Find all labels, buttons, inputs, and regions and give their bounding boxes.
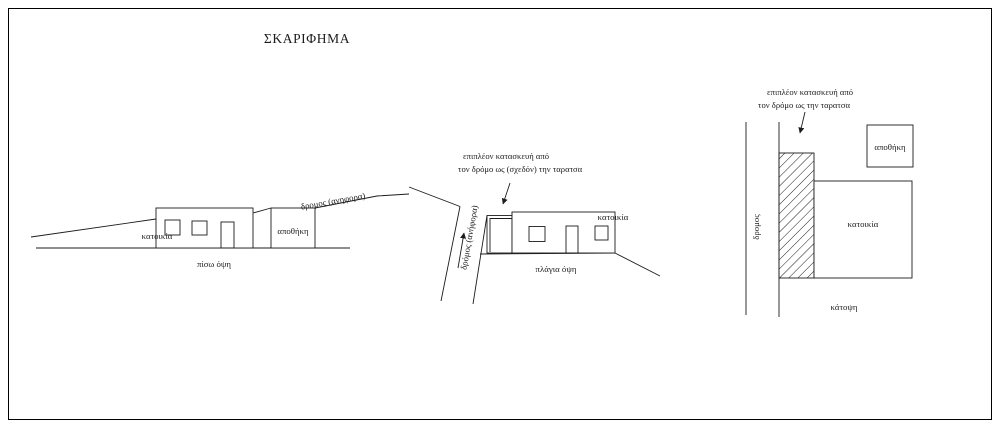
rear-house-outline [156, 208, 253, 248]
plan-road-label: δρομος [751, 214, 761, 240]
side-annotation-line1: επιπλέον κατασκευή από [463, 151, 549, 161]
plan-annotation-line2: τον δρόμο ως την ταρατσα [758, 100, 850, 110]
side-annotation-line2: τον δρόμο ως (σχεδόν) την ταρατσα [458, 164, 583, 174]
side-road-label: δρόμος (ανήφορα) [458, 204, 479, 270]
side-annotation-arrow [503, 183, 510, 204]
side-terrain-slope-line [615, 253, 660, 276]
rear-house-label: κατοικία [142, 231, 173, 241]
side-road-left-line [441, 207, 460, 302]
side-road-bend-line [409, 187, 460, 207]
rear-view-caption: πίσω όψη [197, 259, 231, 269]
side-view-caption: πλάγια όψη [536, 264, 577, 274]
rear-terrain-slope-line [31, 219, 156, 237]
rear-road-label: δρομος (ανηφορα) [300, 190, 366, 211]
plan-house-label: κατοικία [848, 219, 879, 229]
side-addition-outline [487, 216, 512, 254]
plan-house-outline [814, 181, 912, 278]
side-view-drawing [409, 183, 660, 304]
plan-annotation-arrow [800, 112, 805, 133]
page-title: ΣΚΑΡΙΦΗΜΑ [264, 31, 350, 46]
plan-view-caption: κάτοψη [830, 302, 857, 312]
rear-connector-line [253, 208, 271, 213]
rear-storage-label: αποθήκη [277, 226, 309, 236]
sketch-page: ΣΚΑΡΙΦΗΜΑ κατοικία αποθήκη δρομος (ανηφο… [0, 0, 1000, 428]
plan-addition-hatched [779, 153, 814, 278]
plan-storage-label: αποθήκη [874, 142, 906, 152]
side-house-label: κατοικία [598, 212, 629, 222]
plan-annotation-line1: επιπλέον κατασκευή από [767, 87, 853, 97]
